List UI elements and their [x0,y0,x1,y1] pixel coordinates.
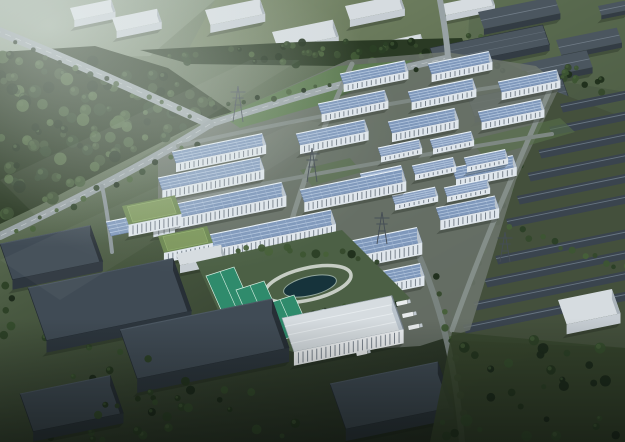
aerial-render-stage [0,0,625,442]
industrial-park-aerial-render [0,0,625,442]
bottom-vignette [0,0,625,442]
